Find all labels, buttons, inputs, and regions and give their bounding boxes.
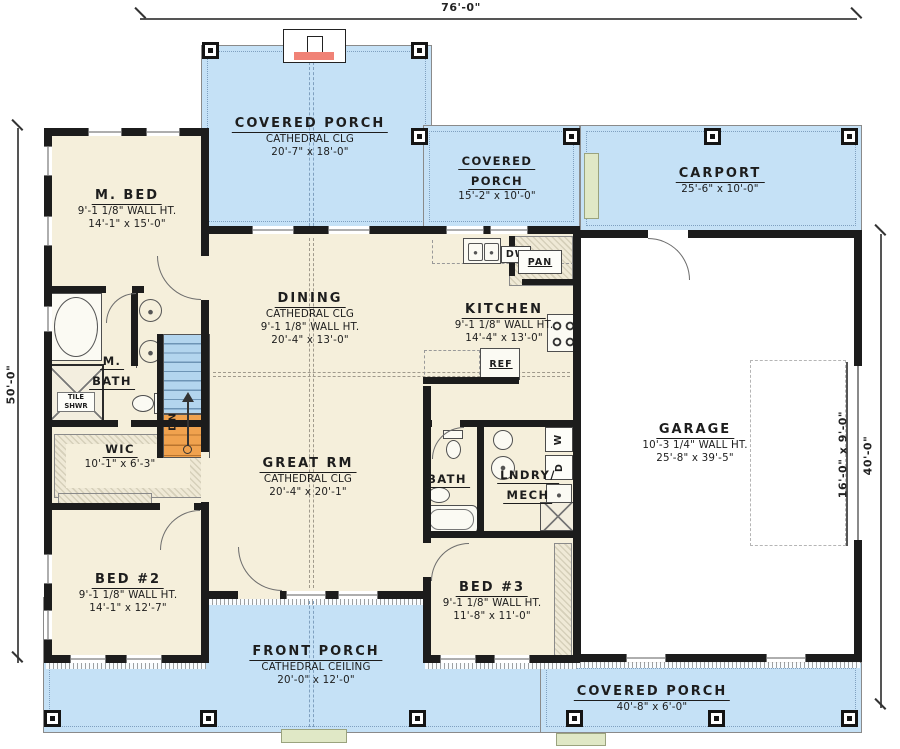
room-label-great-rm: GREAT RM CATHEDRAL CLG 20'-4" x 20'-1"	[260, 452, 357, 499]
porch-post	[202, 42, 219, 59]
deck-edge	[46, 663, 206, 669]
wall-segment	[157, 334, 163, 458]
fireplace-hearth	[294, 52, 334, 60]
kitchen-peninsula	[424, 350, 480, 380]
wall-segment	[194, 503, 209, 510]
window	[44, 216, 52, 246]
window	[44, 554, 52, 584]
window	[126, 655, 162, 663]
window	[286, 591, 326, 599]
porch-post	[200, 710, 217, 727]
window	[44, 146, 52, 176]
dimension-tick	[135, 7, 147, 19]
garage-door-line	[857, 366, 859, 540]
room-label-covered-porch-top: COVERED PORCH CATHEDRAL CLG 20'-7" x 18'…	[232, 112, 388, 159]
bath-tub-inner	[429, 509, 474, 530]
room-label-covered-porch-bottom: COVERED PORCH 40'-8" x 6'-0"	[574, 680, 730, 714]
passage-opening	[201, 452, 209, 502]
rear-porch-step	[556, 733, 606, 746]
stairs-arrow-line	[187, 400, 189, 446]
dimension-right-outer-label: 40'-0"	[862, 421, 875, 491]
bath-sink	[428, 487, 450, 503]
carport-step	[584, 153, 599, 219]
tile-shower-label: TILE SHWR	[57, 392, 95, 412]
wall-segment	[573, 654, 862, 662]
door-opening	[423, 543, 431, 577]
room-label-covered-porch-upper: COVERED PORCH 15'-2" x 10'-0"	[458, 150, 536, 203]
room-label-bath: BATH	[424, 468, 470, 488]
dimension-line-right-outer	[880, 234, 882, 708]
wall-segment	[573, 230, 862, 238]
room-label-wic: WIC 10'-1" x 6'-3"	[85, 438, 156, 471]
room-label-m-bed: M. BED 9'-1 1/8" WALL HT. 14'-1" x 15'-0…	[78, 184, 177, 231]
wall-segment	[522, 279, 574, 285]
dimension-tick	[851, 7, 863, 19]
stairs-dn-label: DN	[168, 407, 179, 437]
dimension-right-inner-label: 16'-0" x 9'-0"	[837, 395, 850, 515]
washer: W	[545, 427, 573, 452]
room-label-kitchen: KITCHEN 9'-1 1/8" WALL HT. 14'-4" x 13'-…	[455, 298, 554, 345]
door-opening	[238, 591, 280, 599]
kitchen-sink	[463, 238, 501, 264]
window	[44, 610, 52, 640]
master-toilet-bowl	[132, 395, 154, 412]
porch-post	[704, 128, 721, 145]
porch-post	[44, 710, 61, 727]
window	[252, 226, 294, 234]
porch-post	[409, 710, 426, 727]
deck-edge	[209, 599, 428, 605]
door-opening	[160, 503, 194, 510]
garage-ceiling-outline	[750, 360, 846, 546]
pantry-label: PAN	[518, 250, 562, 274]
master-tub-oval	[54, 297, 98, 357]
room-label-m-bath: M. BATH	[89, 350, 135, 390]
dimension-top-label: 76'-0"	[430, 1, 492, 14]
wall-segment	[201, 128, 209, 663]
porch-post	[411, 42, 428, 59]
window	[146, 128, 180, 136]
porch-post	[841, 710, 858, 727]
wall-segment	[44, 503, 160, 510]
vanity-sink	[139, 299, 162, 322]
room-label-bed3: BED #3 9'-1 1/8" WALL HT. 11'-8" x 11'-0…	[443, 576, 542, 623]
mech-unit	[540, 502, 576, 531]
front-porch-step	[281, 729, 347, 743]
wall-segment	[44, 420, 118, 427]
window	[88, 128, 122, 136]
fireplace	[283, 29, 346, 63]
window	[44, 306, 52, 332]
wall-segment	[423, 377, 519, 384]
dimension-line-top	[140, 18, 857, 20]
center-floor	[201, 226, 430, 599]
door-opening	[106, 286, 132, 293]
stairs-arrow-head	[182, 392, 194, 402]
porch-post	[566, 710, 583, 727]
bed3-closet	[554, 543, 572, 657]
window	[626, 654, 666, 662]
stairs-newel	[183, 445, 192, 454]
door-opening	[648, 230, 688, 238]
wall-segment	[423, 531, 581, 538]
room-label-front-porch: FRONT PORCH CATHEDRAL CEILING 20'-0" x 1…	[249, 640, 382, 687]
room-label-dining: DINING CATHEDRAL CLG 9'-1 1/8" WALL HT. …	[261, 287, 360, 348]
door-opening	[201, 256, 209, 300]
refrigerator-label: REF	[484, 354, 518, 374]
window	[766, 654, 806, 662]
wall-segment	[423, 386, 431, 663]
water-heater	[493, 430, 513, 450]
door-opening	[432, 420, 460, 427]
porch-post	[841, 128, 858, 145]
room-label-bed2: BED #2 9'-1 1/8" WALL HT. 14'-1" x 12'-7…	[79, 568, 178, 615]
room-label-lndry-mech: LNDRY/ MECH	[497, 464, 559, 504]
window	[70, 655, 106, 663]
window	[338, 591, 378, 599]
room-label-garage: GARAGE 10'-3 1/4" WALL HT. 25'-8" x 39'-…	[642, 418, 747, 465]
wall-segment	[44, 128, 209, 136]
wall-segment	[573, 230, 581, 662]
wall-segment	[477, 420, 484, 538]
floor-plan: DW PAN REF W D DN	[0, 0, 900, 749]
window	[328, 226, 370, 234]
window	[440, 655, 476, 663]
window	[494, 655, 530, 663]
room-label-carport: CARPORT 25'-6" x 10'-0"	[676, 162, 765, 196]
window	[446, 226, 484, 234]
porch-post	[563, 128, 580, 145]
porch-post	[411, 128, 428, 145]
porch-post	[708, 710, 725, 727]
dimension-left-label: 50'-0"	[5, 350, 18, 420]
window	[490, 226, 528, 234]
deck-edge	[425, 663, 577, 669]
deck-edge	[577, 662, 860, 668]
